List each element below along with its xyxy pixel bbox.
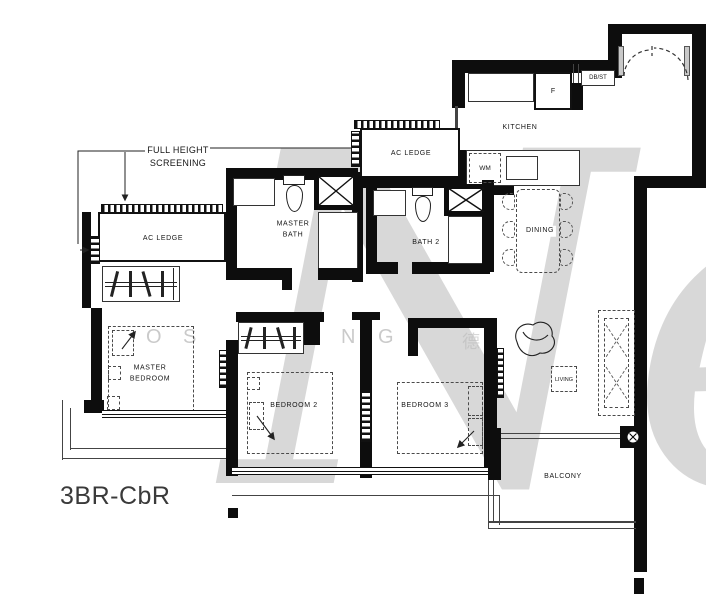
window-louver <box>497 348 504 398</box>
wall <box>84 400 104 413</box>
wardrobe <box>102 266 180 302</box>
hanging-clothes <box>293 327 296 349</box>
hanging-clothes <box>161 271 164 297</box>
wall <box>318 268 358 280</box>
wall <box>634 188 647 572</box>
dining-chair <box>560 221 573 238</box>
washing-machine: WM <box>469 153 501 183</box>
entry-door-jamb <box>684 46 690 76</box>
wall <box>228 508 238 518</box>
wall <box>226 340 238 476</box>
dining-chair <box>560 193 573 210</box>
hanging-clothes <box>110 271 119 297</box>
vanity-counter <box>373 190 406 216</box>
full-height-screening-label: FULL HEIGHT SCREENING <box>147 144 208 170</box>
ledge-line <box>70 448 232 449</box>
dining-label: DINING <box>524 226 556 237</box>
kitchen-label: KITCHEN <box>503 123 538 134</box>
window <box>102 410 232 418</box>
hanging-clothes <box>129 271 132 297</box>
bedside-table <box>468 386 483 416</box>
sliding-door-track <box>501 433 634 434</box>
toilet-bowl <box>415 196 431 222</box>
bedside-table <box>247 377 260 390</box>
bed-pillow <box>112 330 134 356</box>
parapet-line <box>488 528 636 529</box>
hanging-clothes <box>244 327 252 349</box>
ledge-line <box>232 495 500 496</box>
bedside-table <box>107 396 120 410</box>
db-st-box: DB/ST <box>581 70 615 86</box>
watermark-letter: 德 <box>462 328 480 354</box>
floor-plan: Ne O S N G 德 F DB/ST WM KITCHEN AC LEDGE <box>0 0 706 600</box>
screening-hatch <box>90 236 100 264</box>
bedside-table <box>108 366 121 380</box>
wall <box>91 308 102 406</box>
ledge-line <box>62 458 232 459</box>
window <box>232 467 498 475</box>
bedside-table <box>468 418 483 446</box>
wardrobe-rod <box>105 286 177 287</box>
master-bedroom-label: MASTER BEDROOM <box>130 364 170 385</box>
bath2-label: BATH 2 <box>412 238 440 249</box>
door-jamb <box>408 318 418 356</box>
toilet-bowl <box>286 185 303 212</box>
dining-chair <box>502 249 515 266</box>
kitchen-sink <box>506 156 538 180</box>
column-box <box>620 426 646 448</box>
parapet-line <box>493 480 494 522</box>
bedroom2-label: BEDROOM 2 <box>270 401 317 412</box>
parapet-line <box>488 480 489 528</box>
fridge: F <box>534 72 572 110</box>
wardrobe-rod <box>241 340 301 341</box>
wall <box>366 262 398 274</box>
entry-door-jamb <box>618 46 624 76</box>
opening-line <box>573 64 574 83</box>
dining-chair <box>502 193 515 210</box>
parapet-line <box>488 521 636 523</box>
wall <box>572 83 583 110</box>
service-shaft <box>314 172 358 210</box>
sofa-seat <box>604 318 629 408</box>
screening-hatch <box>351 131 360 167</box>
store-room <box>318 212 358 270</box>
armchair-sketch <box>516 322 555 355</box>
wall <box>226 268 282 280</box>
wall <box>634 176 706 188</box>
living-label: LIVING <box>555 376 573 384</box>
screening-hatch <box>101 204 223 213</box>
master-bath-label: MASTER BATH <box>277 220 310 241</box>
wall <box>488 428 501 480</box>
window-louver <box>219 350 227 388</box>
watermark-letter: N <box>341 326 355 349</box>
wall <box>452 60 465 108</box>
door-jamb <box>282 268 292 290</box>
wall <box>482 180 494 272</box>
toilet-tank <box>412 187 433 196</box>
opening-line <box>578 64 579 83</box>
wall <box>634 578 644 594</box>
entry-door-swing <box>624 46 688 80</box>
wall <box>408 318 490 328</box>
watermark-letter: G <box>378 326 394 349</box>
ledge-line <box>70 408 71 450</box>
ac-ledge-mid-label: AC LEDGE <box>391 149 431 160</box>
ac-ledge-left-label: AC LEDGE <box>143 234 183 245</box>
wardrobe <box>238 322 304 354</box>
balcony-label: BALCONY <box>544 472 582 483</box>
vanity-counter <box>233 178 275 206</box>
bed-pillow <box>249 402 264 430</box>
kitchen-hob-counter <box>468 73 534 102</box>
ledge-line <box>62 400 63 460</box>
wall <box>352 312 380 320</box>
dining-chair <box>502 221 515 238</box>
wall-hatch <box>361 390 371 442</box>
bedroom3-label: BEDROOM 3 <box>401 401 448 412</box>
door-jamb <box>304 312 320 345</box>
toilet-tank <box>283 175 305 185</box>
sliding-door-track <box>501 438 634 439</box>
wardrobe-panel <box>173 268 174 300</box>
unit-type-title: 3BR-CbR <box>60 482 170 511</box>
dining-chair <box>560 249 573 266</box>
store-room <box>448 216 484 264</box>
wall <box>692 24 706 186</box>
hanging-clothes <box>263 327 266 349</box>
hanging-clothes <box>276 327 285 349</box>
hanging-clothes <box>141 271 151 297</box>
screening-hatch <box>354 120 440 129</box>
